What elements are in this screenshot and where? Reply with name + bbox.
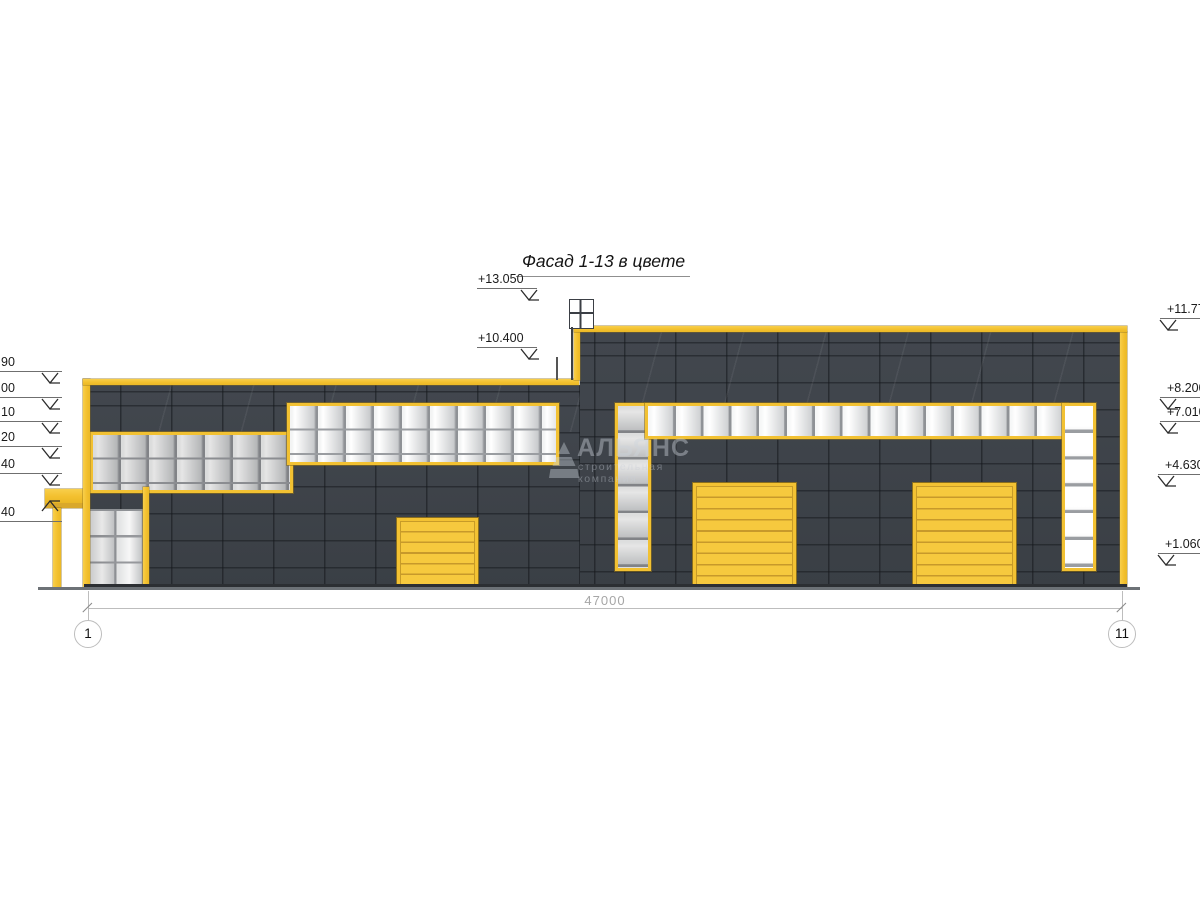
elevation-shelf-line: [0, 521, 62, 522]
glazing: [1065, 406, 1093, 568]
elevation-arrow-icon: [40, 447, 60, 459]
elevation-arrow-icon: [40, 500, 60, 512]
elevation-arrow-icon: [519, 289, 539, 301]
entrance-yellow-trim: [143, 487, 149, 588]
window-band-left-high: [287, 403, 559, 465]
elevation-arrow-icon: [519, 348, 539, 360]
entrance-glass-door: [89, 509, 144, 590]
elevation-label: 40: [1, 505, 27, 520]
elevation-arrow-icon: [40, 398, 60, 410]
left-corner-trim: [83, 379, 90, 589]
canopy-column: [53, 508, 61, 588]
window-column-right: [1062, 403, 1096, 571]
elevation-label: 00: [1, 381, 27, 396]
drawing-title: Фасад 1-13 в цвете: [516, 251, 690, 277]
elevation-label: +4.630: [1165, 458, 1200, 473]
roof-antenna: [556, 357, 558, 380]
glazing: [93, 435, 290, 490]
door-slats: [916, 486, 1013, 586]
axis-bubble-11: 11: [1108, 620, 1136, 648]
facade-right-reflections: [580, 332, 1120, 403]
door-slats: [696, 486, 793, 586]
elevation-label: +1.060: [1165, 537, 1200, 552]
roof-ladder: [569, 299, 594, 329]
left-roof-coping: [83, 379, 579, 385]
elevation-label: +11.770: [1167, 302, 1200, 317]
ground-line: [38, 587, 1140, 590]
sectional-door-3: [912, 482, 1017, 590]
elevation-arrow-icon: [40, 422, 60, 434]
elevation-label: 20: [1, 430, 27, 445]
right-corner-trim: [1120, 332, 1127, 588]
elevation-arrow-icon: [40, 372, 60, 384]
elevation-label: +8.200: [1167, 381, 1200, 396]
elevation-arrow-icon: [1156, 554, 1176, 566]
right-roof-coping: [574, 326, 1127, 332]
elevation-arrow-icon: [1158, 422, 1178, 434]
elevation-label: 90: [1, 355, 27, 370]
elevation-label: +10.400: [478, 331, 530, 346]
glazing: [618, 406, 648, 568]
window-band-left-low: [90, 432, 293, 493]
axis-bubble-1: 1: [74, 620, 102, 648]
sectional-door-1: [396, 517, 479, 590]
ladder-pole: [571, 327, 573, 380]
elevation-arrow-icon: [1156, 475, 1176, 487]
elevation-label: 10: [1, 405, 27, 420]
window-band-right: [645, 403, 1068, 439]
elevation-label: +13.050: [478, 272, 530, 287]
dimension-line: [88, 608, 1122, 609]
glazing: [290, 406, 556, 462]
glazing: [648, 406, 1065, 436]
elevation-arrow-icon: [40, 474, 60, 486]
door-slats: [400, 521, 475, 586]
facade-drawing-canvas: Фасад 1-13 в цвете: [0, 0, 1200, 900]
sectional-door-2: [692, 482, 797, 590]
elevation-arrow-icon: [1158, 319, 1178, 331]
step-corner-trim: [574, 326, 580, 380]
elevation-label: 40: [1, 457, 27, 472]
overall-dimension: 47000: [88, 593, 1122, 608]
elevation-label: +7.010: [1167, 405, 1200, 420]
